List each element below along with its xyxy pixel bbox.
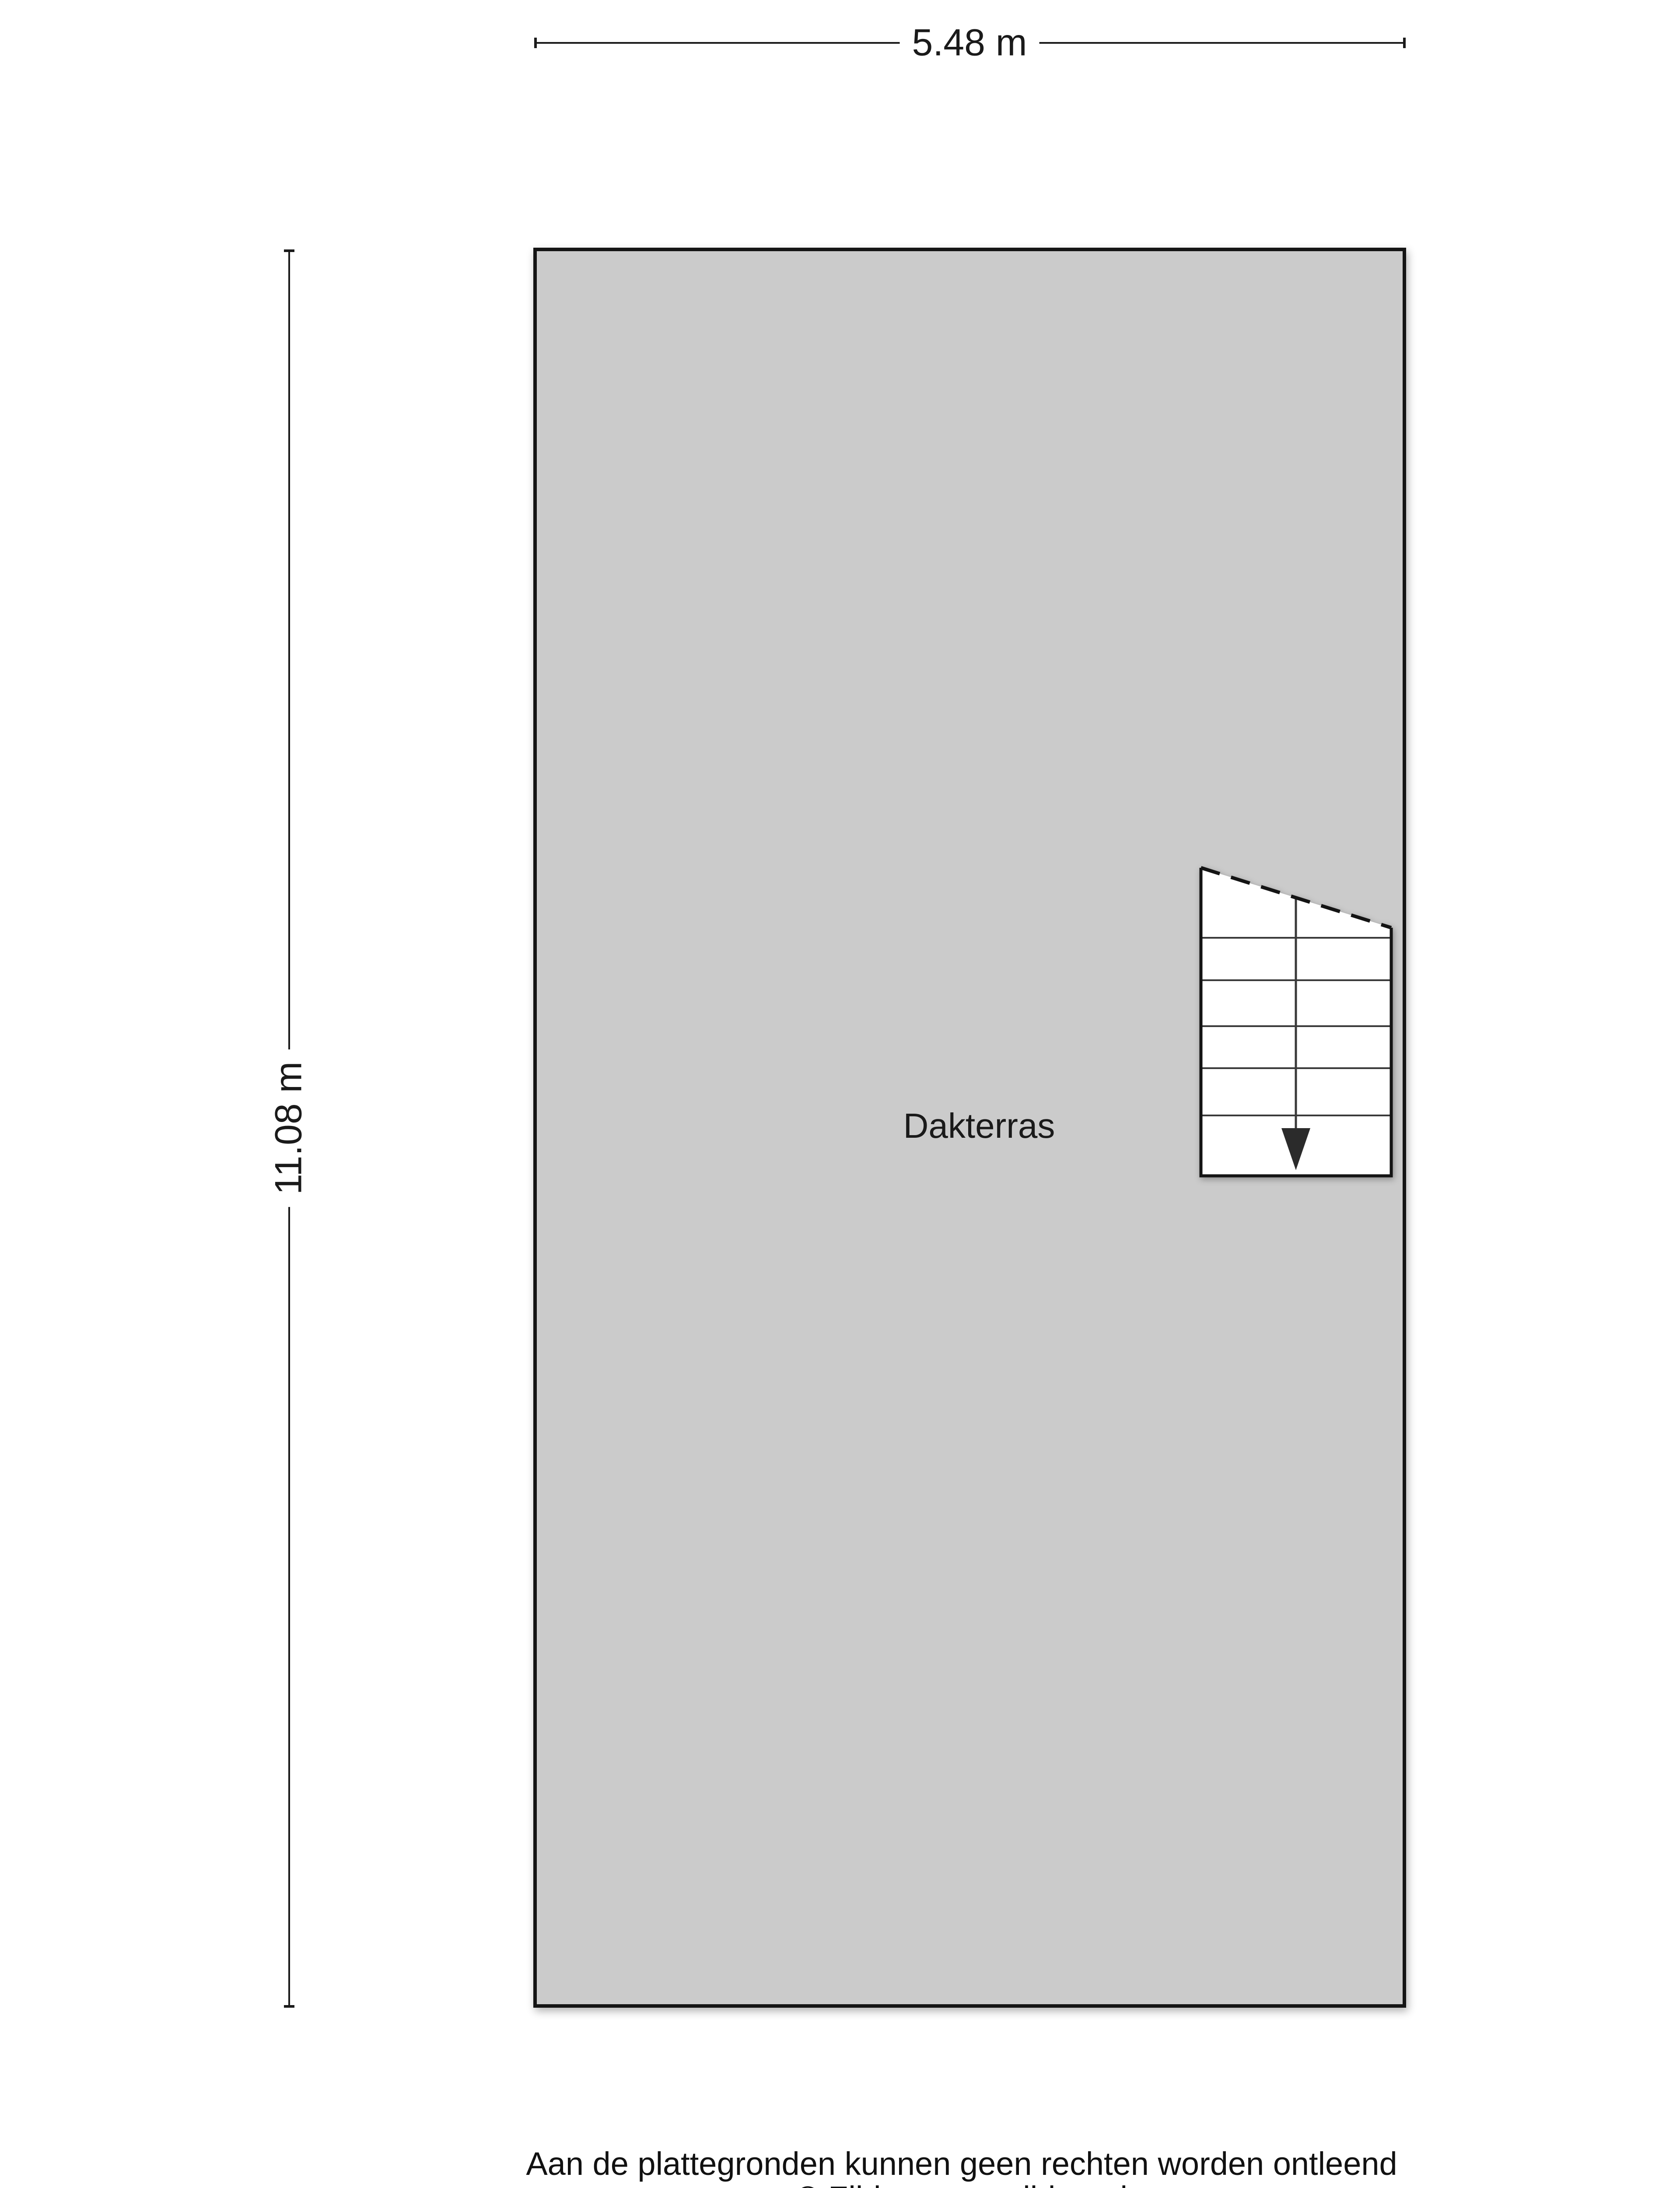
footer: Aan de plattegronden kunnen geen rechten… [526,2147,1397,2188]
room-label: Dakterras [903,1106,1055,1146]
height-dimension-label: 11.08 m [268,1049,310,1207]
footer-disclaimer: Aan de plattegronden kunnen geen rechten… [526,2147,1397,2181]
footer-copyright: © Zibber www.zibber.nl [526,2181,1397,2188]
staircase [1186,853,1405,1203]
width-dimension-label: 5.48 m [900,22,1039,64]
